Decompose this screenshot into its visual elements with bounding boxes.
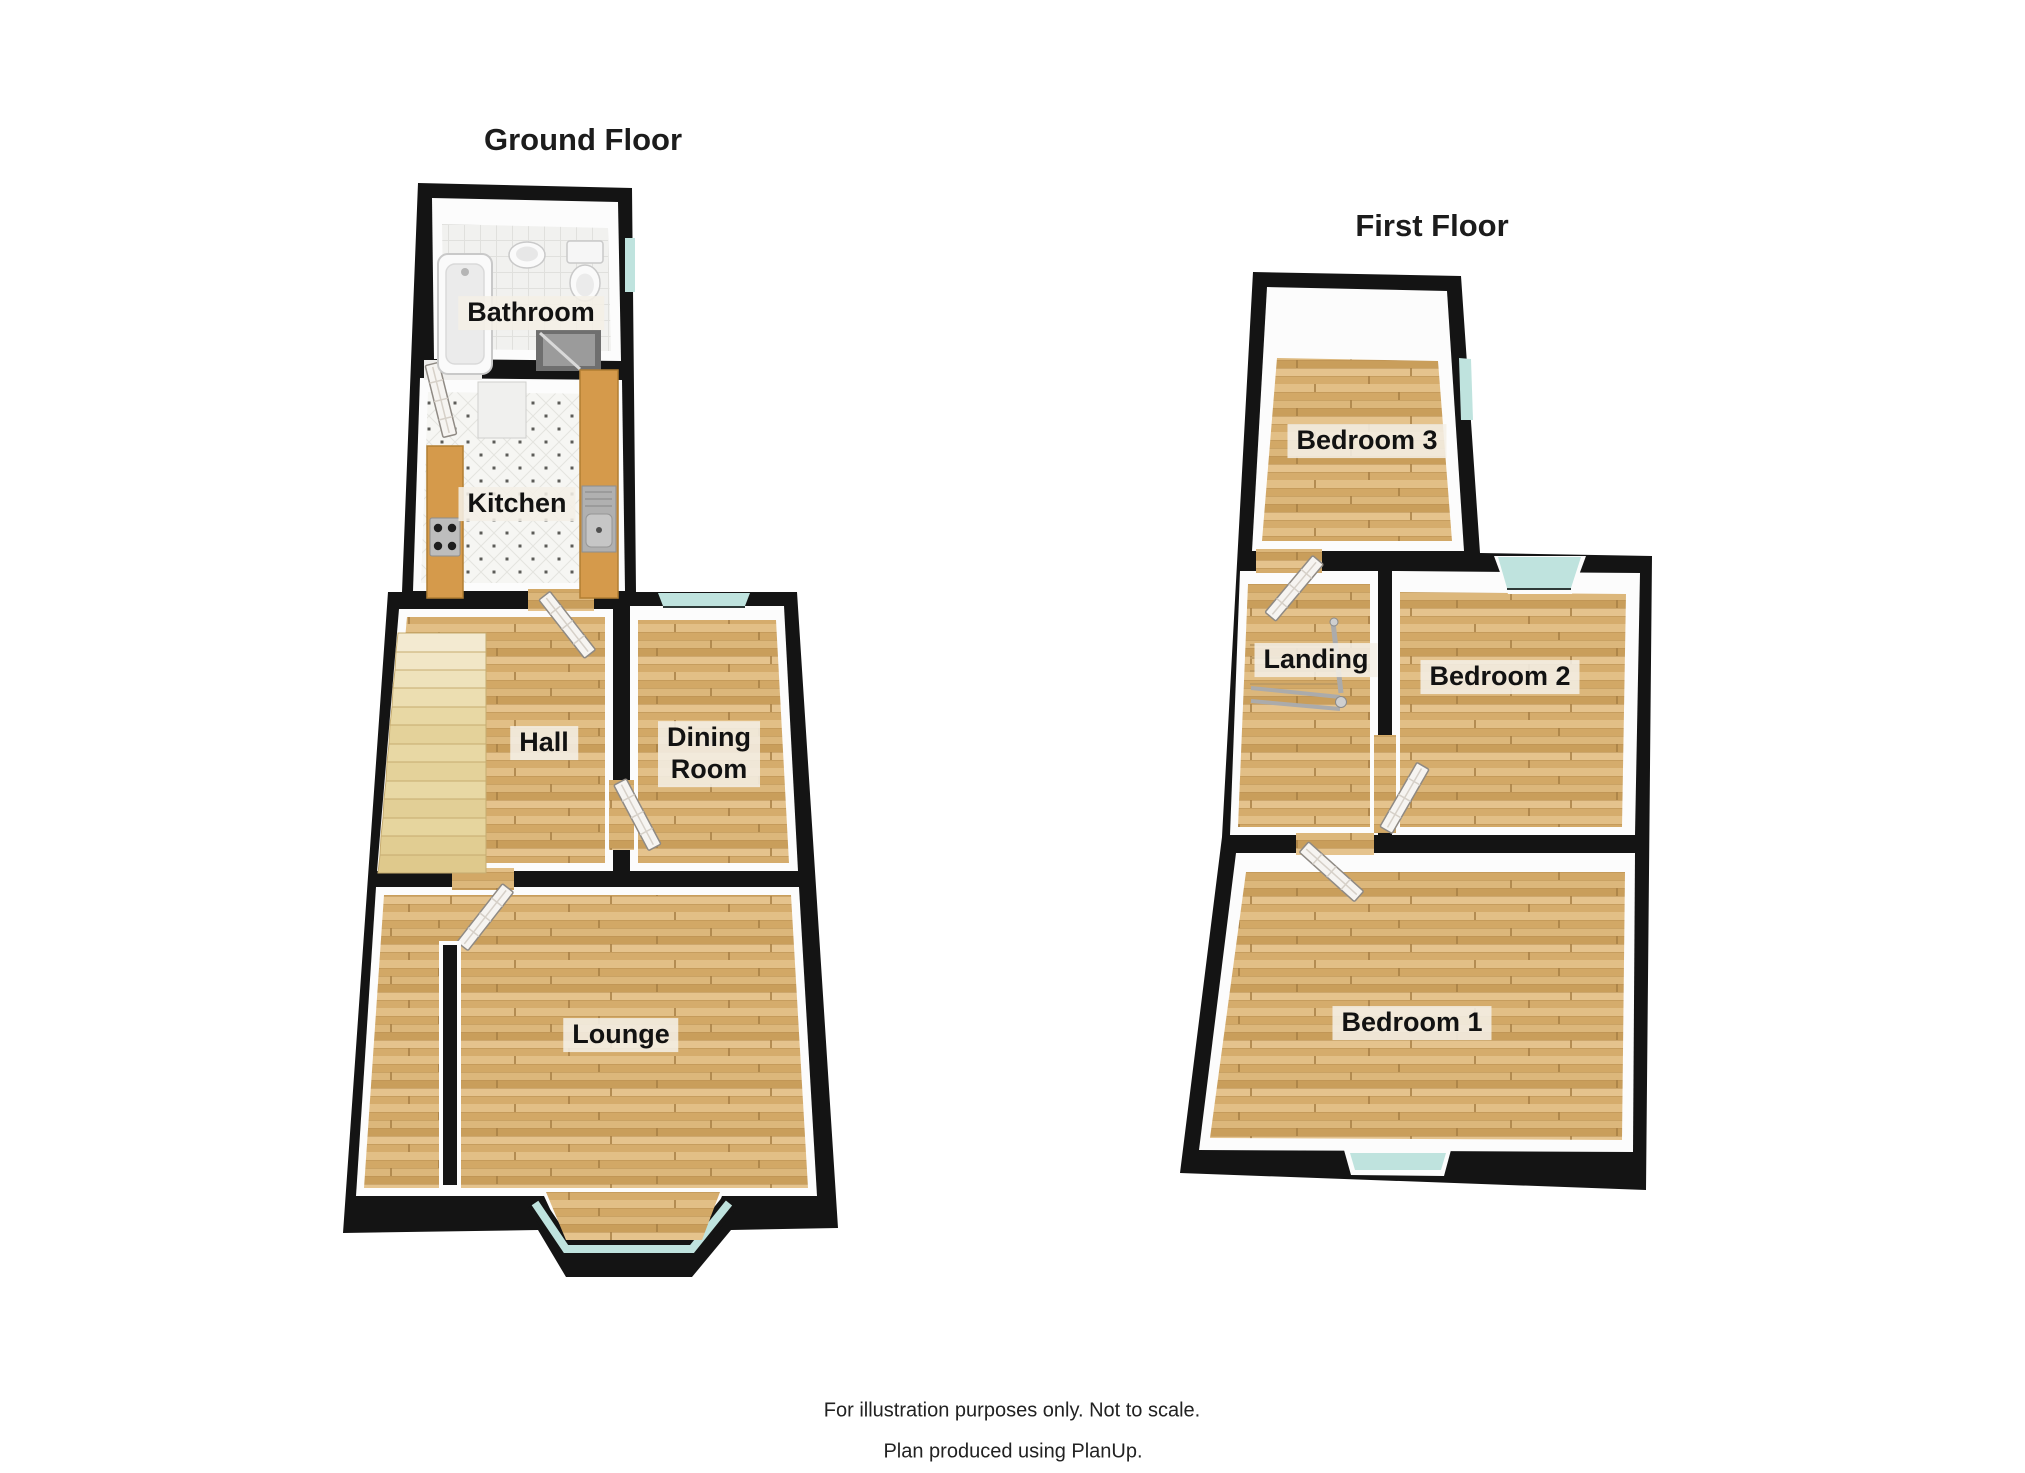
basin-icon bbox=[509, 242, 545, 268]
bathroom-window bbox=[625, 238, 635, 292]
room-label-dining-room: Dining Room bbox=[658, 721, 760, 787]
room-label-bedroom3: Bedroom 3 bbox=[1287, 424, 1446, 458]
first-floor-title: First Floor bbox=[1355, 208, 1508, 244]
plan-credit-text: Plan produced using PlanUp. bbox=[883, 1441, 1142, 1464]
room-label-bedroom1: Bedroom 1 bbox=[1332, 1006, 1491, 1040]
kitchen-counter-right bbox=[580, 370, 618, 598]
fridge-icon bbox=[478, 382, 526, 438]
first-floor-plan bbox=[1180, 272, 1652, 1190]
ground-floor-title: Ground Floor bbox=[484, 122, 682, 158]
lounge-recess-wall bbox=[439, 941, 461, 1189]
room-label-landing: Landing bbox=[1255, 643, 1378, 677]
room-label-hall: Hall bbox=[510, 726, 578, 760]
bedroom1-window bbox=[1344, 1150, 1451, 1176]
floorplan-page: Ground Floor First Floor Bathroom Kitche… bbox=[0, 0, 2025, 1473]
dining-window bbox=[654, 593, 754, 620]
room-label-bathroom: Bathroom bbox=[458, 296, 604, 330]
room-label-bedroom2: Bedroom 2 bbox=[1420, 660, 1579, 694]
bedroom2-window bbox=[1494, 556, 1586, 594]
room-label-kitchen: Kitchen bbox=[458, 487, 575, 521]
bedroom3-window bbox=[1459, 358, 1473, 420]
disclaimer-text: For illustration purposes only. Not to s… bbox=[824, 1400, 1200, 1423]
bay-window bbox=[535, 1192, 729, 1249]
kitchen-sink-icon bbox=[582, 486, 616, 552]
shower-icon bbox=[536, 330, 601, 371]
room-label-lounge: Lounge bbox=[563, 1018, 678, 1052]
hob-icon bbox=[430, 518, 460, 556]
ground-floor-plan bbox=[343, 183, 838, 1277]
floorplan-drawing bbox=[0, 0, 2025, 1473]
bedroom2-floor bbox=[1400, 592, 1626, 827]
